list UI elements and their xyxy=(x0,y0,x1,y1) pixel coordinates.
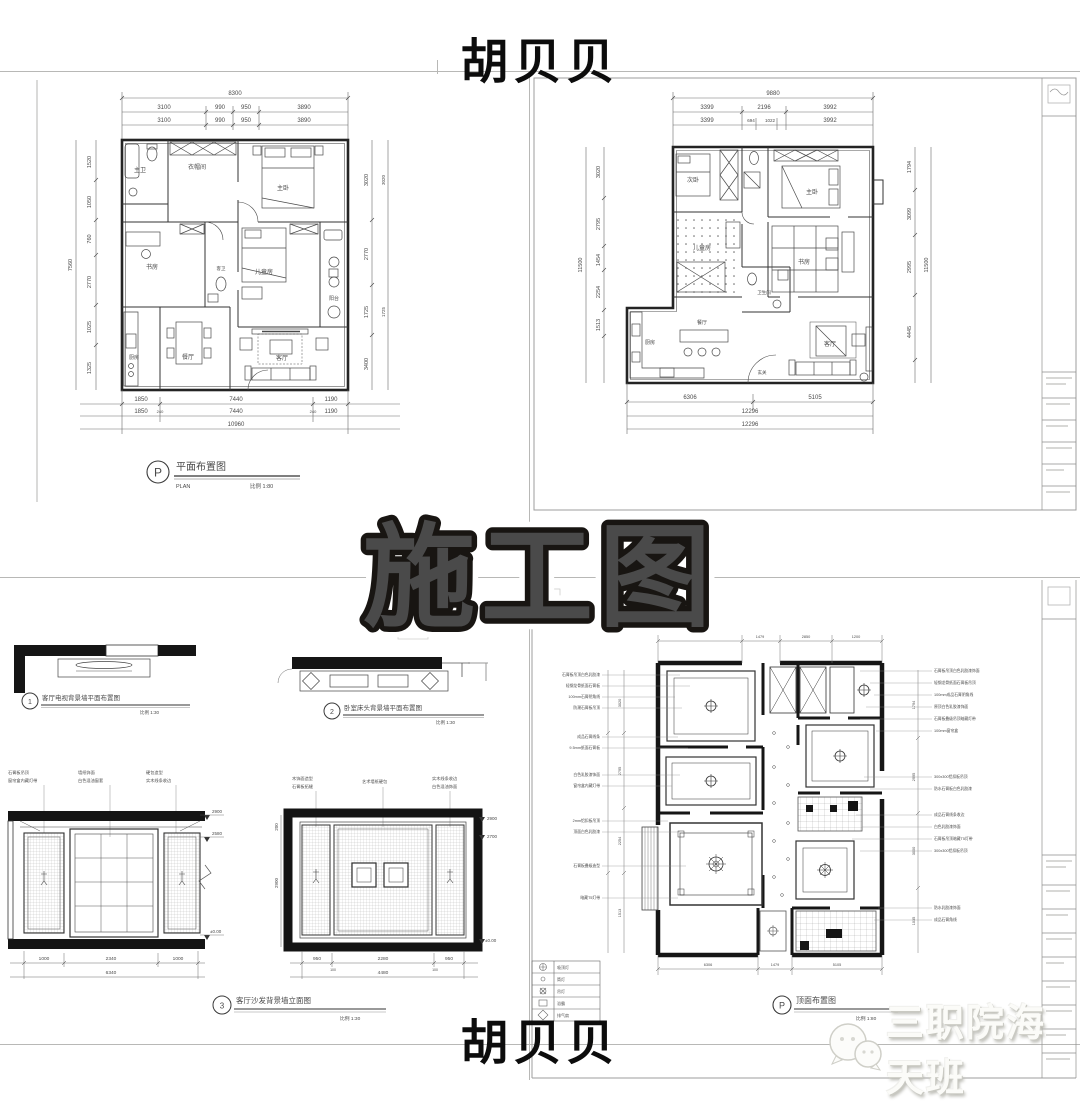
leader-notes: 木饰面造型 石膏板拓缝 艺术墙纸硬包 实木线条收边 白色混油饰面 xyxy=(292,775,458,827)
svg-text:成品石膏角线: 成品石膏角线 xyxy=(934,917,957,922)
svg-text:3020: 3020 xyxy=(618,699,622,707)
door-arc xyxy=(205,222,223,240)
svg-text:2340: 2340 xyxy=(106,956,117,962)
dim-label: 1725 xyxy=(381,306,386,317)
svg-text:2580: 2580 xyxy=(212,831,223,836)
sink-icon xyxy=(129,188,137,196)
dim-label: 3020 xyxy=(364,174,370,186)
wardrobe xyxy=(720,150,738,200)
dim-label: 3399 xyxy=(700,105,714,111)
detail-scale: 比例 1:30 xyxy=(436,719,456,726)
dim-label: 1454 xyxy=(596,254,602,266)
plan-walls xyxy=(627,147,883,383)
dimension-chain-right: 1794 2995 3000 1035 xyxy=(912,670,920,953)
svg-text:950: 950 xyxy=(313,956,321,962)
art-frame xyxy=(352,863,376,887)
svg-text:2795: 2795 xyxy=(618,767,622,775)
drawing-title-en: PLAN xyxy=(176,484,190,490)
dimension-chain-bottom: 6306 5105 12296 12296 xyxy=(625,383,875,434)
toilet-icon xyxy=(750,152,759,165)
svg-text:100: 100 xyxy=(330,968,336,972)
svg-text:白色混油窗套: 白色混油窗套 xyxy=(78,777,104,784)
dim-label: 3992 xyxy=(823,105,837,111)
toilet-icon xyxy=(748,273,757,285)
dim-label: 3890 xyxy=(297,118,311,124)
break-mark xyxy=(199,865,211,889)
dim-label: 1190 xyxy=(325,409,339,415)
ceiling-lamp xyxy=(704,774,718,788)
svg-text:200: 200 xyxy=(274,823,279,831)
dim-label: 3099 xyxy=(907,208,913,220)
dim-label: 1025 xyxy=(87,321,93,333)
dim-label: 1325 xyxy=(87,362,93,374)
sheet-border xyxy=(534,78,1076,510)
dim-label: 3100 xyxy=(157,105,171,111)
svg-text:艺术墙纸硬包: 艺术墙纸硬包 xyxy=(362,778,388,785)
chandelier xyxy=(817,862,833,878)
kids-room-ceiling xyxy=(675,214,740,295)
svg-text:石膏板叠级吊顶暗藏灯带: 石膏板叠级吊顶暗藏灯带 xyxy=(934,716,976,721)
room-label-living: 客厅 xyxy=(824,340,836,348)
svg-text:5105: 5105 xyxy=(833,963,841,967)
sofa xyxy=(252,368,310,380)
dim-label: 2995 xyxy=(907,261,913,273)
svg-text:顶面白色乳胶漆: 顶面白色乳胶漆 xyxy=(573,829,600,834)
title-no: 2 xyxy=(330,709,334,716)
bed-master xyxy=(782,166,840,208)
svg-text:±0.00: ±0.00 xyxy=(210,929,222,934)
lamp-symbol xyxy=(422,673,439,690)
dimension-chain-left: 3020 2795 2254 1513 xyxy=(606,670,626,953)
dim-label: 2795 xyxy=(596,218,602,230)
dim-label: 3890 xyxy=(297,105,311,111)
dimension-chain-left: 3020 2795 1454 2254 1513 11500 xyxy=(578,147,606,383)
dim-label: 12296 xyxy=(742,409,759,415)
svg-text:1000: 1000 xyxy=(39,956,50,962)
svg-text:950: 950 xyxy=(445,956,453,962)
detail-title: 客厅电视背景墙平面布置图 xyxy=(42,693,120,702)
center-banner: 施工图 施工图 施工图 xyxy=(240,498,840,658)
svg-text:6340: 6340 xyxy=(106,970,117,976)
downlights xyxy=(773,732,790,897)
dim-label: 3100 xyxy=(157,118,171,124)
detail-title-a: 1 客厅电视背景墙平面布置图 比例 1:30 xyxy=(22,693,190,716)
bed-second xyxy=(676,154,710,196)
ceiling-coffers xyxy=(666,667,874,905)
svg-text:300x300铝扣板吊顶: 300x300铝扣板吊顶 xyxy=(934,848,968,853)
channel-watermark: 三职院海天班 xyxy=(822,1016,1080,1078)
elevation-sofa-wall: 木饰面造型 石膏板拓缝 艺术墙纸硬包 实木线条收边 白色混油饰面 200 290… xyxy=(274,775,498,979)
dim-label: 4445 xyxy=(907,326,913,338)
dimension-chain-right: 1794 3099 2995 4445 11500 xyxy=(907,147,931,383)
door-arc xyxy=(278,669,292,683)
dim-label: 2196 xyxy=(757,105,771,111)
svg-text:1794: 1794 xyxy=(912,701,916,709)
room-label-kitchen: 厨房 xyxy=(645,339,655,346)
room-label-bath-g: 客卫 xyxy=(217,265,226,272)
svg-text:墙纸饰面: 墙纸饰面 xyxy=(78,769,95,776)
ceiling-lamp xyxy=(857,683,871,697)
dim-label: 990 xyxy=(215,105,226,111)
bar-stool xyxy=(684,348,692,356)
dim-label: 6306 xyxy=(683,395,697,401)
wechat-icon xyxy=(822,1018,886,1076)
sheet-title-strip xyxy=(1042,78,1076,510)
detail-title-b: 2 卧室床头背景墙平面布置图 比例 1:30 xyxy=(324,703,484,726)
dim-label: 5105 xyxy=(808,395,822,401)
svg-text:白色混油饰面: 白色混油饰面 xyxy=(432,783,457,790)
svg-text:4480: 4480 xyxy=(378,970,389,976)
room-label-master: 主卧 xyxy=(806,188,818,196)
svg-text:2280: 2280 xyxy=(378,956,389,962)
svg-text:窗帘盒内藏灯带: 窗帘盒内藏灯带 xyxy=(8,777,37,784)
detail-scale: 比例 1:30 xyxy=(140,709,160,716)
dim-label: 760 xyxy=(87,234,93,243)
svg-text:实木线条收边: 实木线条收边 xyxy=(146,777,172,784)
svg-text:300x300铝扣板吊顶: 300x300铝扣板吊顶 xyxy=(934,774,968,779)
svg-text:成品石膏线条: 成品石膏线条 xyxy=(577,734,600,739)
ceiling-lamp xyxy=(704,699,718,713)
detail-tv-wall-plan xyxy=(14,645,196,693)
dim-label: 990 xyxy=(215,118,226,124)
dimension-chain-right: 3020 2770 1725 3400 3020 1725 xyxy=(364,140,388,390)
room-label-kids: 儿童房 xyxy=(693,244,711,252)
dim-label: 3020 xyxy=(381,174,386,185)
svg-text:石膏板叠级造型: 石膏板叠级造型 xyxy=(573,863,600,868)
room-label-second: 次卧 xyxy=(687,176,699,184)
svg-text:石膏板吊顶白色乳胶漆: 石膏板吊顶白色乳胶漆 xyxy=(562,672,600,677)
svg-text:9.5mm纸面石膏板: 9.5mm纸面石膏板 xyxy=(569,745,600,750)
kitchen-counter xyxy=(124,312,138,386)
tile-ceilings xyxy=(760,797,876,951)
svg-text:吸顶灯: 吸顶灯 xyxy=(557,964,569,970)
detail-title: 卧室床头背景墙平面布置图 xyxy=(344,703,422,712)
svg-text:窗帘盒内藏灯带: 窗帘盒内藏灯带 xyxy=(573,783,600,788)
room-label-bath-m: 主卫 xyxy=(134,166,146,174)
room-label-balcony: 阳台 xyxy=(329,295,339,302)
room-label-bath: 卫生间 xyxy=(757,289,771,296)
dim-label: 1050 xyxy=(87,196,93,208)
dim-label: 11500 xyxy=(578,258,584,273)
dim-label: 12296 xyxy=(742,422,759,428)
door-arc xyxy=(742,212,754,224)
dim-label: 1794 xyxy=(907,161,913,173)
title-letter: P xyxy=(154,466,162,480)
dimension-chain-bottom: 950 2280 950 100 100 4480 xyxy=(290,951,478,979)
dimension-chain-top: 9880 3399 2196 3992 3399 694 1022 3992 xyxy=(671,91,875,147)
svg-text:筒灯: 筒灯 xyxy=(557,976,565,982)
svg-text:轻钢龙骨纸面石膏板吊顶: 轻钢龙骨纸面石膏板吊顶 xyxy=(934,680,976,685)
dim-label: 694 xyxy=(747,118,755,123)
svg-text:2254: 2254 xyxy=(618,837,622,845)
dim-label: 1513 xyxy=(596,319,602,331)
sofa xyxy=(796,362,850,375)
desk-kids xyxy=(242,287,262,299)
dim-label: 3399 xyxy=(700,118,714,124)
dimension-chain-bottom: 1850 7440 1190 1850 240 7440 240 1190 10… xyxy=(80,390,400,434)
dim-label: 1022 xyxy=(765,118,776,123)
chandelier xyxy=(706,854,726,874)
height-marks-left: 200 2900 xyxy=(274,815,281,947)
drawing-title: 平面布置图 xyxy=(176,461,226,473)
svg-text:100: 100 xyxy=(432,968,438,972)
svg-text:成品石膏线条收边: 成品石膏线条收边 xyxy=(934,812,965,817)
svg-text:石膏板吊顶: 石膏板吊顶 xyxy=(8,769,30,776)
ceiling-lamp xyxy=(833,749,847,763)
drawing-scale: 比例 1:80 xyxy=(250,482,273,490)
svg-text:2900: 2900 xyxy=(212,809,223,814)
svg-text:100mm石膏阴角线: 100mm石膏阴角线 xyxy=(568,694,600,699)
svg-text:1000: 1000 xyxy=(173,956,184,962)
svg-text:暗藏T5灯带: 暗藏T5灯带 xyxy=(580,895,600,900)
dim-label: 950 xyxy=(241,105,252,111)
svg-text:±0.00: ±0.00 xyxy=(485,938,497,943)
dim-label: 1850 xyxy=(134,397,148,403)
svg-text:吊灯: 吊灯 xyxy=(557,988,565,994)
dim-label: 3020 xyxy=(596,166,602,178)
lamp-symbol xyxy=(303,673,320,690)
door-arc xyxy=(238,202,258,222)
svg-text:石膏板吊顶白色乳胶漆饰面: 石膏板吊顶白色乳胶漆饰面 xyxy=(934,668,980,673)
tea-table xyxy=(270,340,292,354)
sheet-logo xyxy=(1048,587,1070,605)
side-panel xyxy=(436,825,464,935)
svg-text:实木线条收边: 实木线条收边 xyxy=(432,775,458,782)
channel-name: 三职院海天班 xyxy=(886,992,1080,1102)
svg-text:100mm窗帘盒: 100mm窗帘盒 xyxy=(934,728,958,733)
dim-label: 950 xyxy=(241,118,252,124)
dimension-chain-bottom: 1000 2340 1000 6340 xyxy=(10,951,205,979)
dim-label: 240 xyxy=(157,409,164,414)
top-watermark-name: 胡贝贝 xyxy=(0,22,1080,92)
dim-label: 1725 xyxy=(364,306,370,318)
svg-text:石膏板吊顶暗藏T5灯带: 石膏板吊顶暗藏T5灯带 xyxy=(934,836,973,841)
banner-text: 施工图 xyxy=(363,515,717,640)
dim-label: 7440 xyxy=(229,409,243,415)
room-label-cloak: 衣帽间 xyxy=(188,163,206,171)
svg-text:1200: 1200 xyxy=(852,635,860,639)
curtain-panel xyxy=(164,833,200,933)
island-bar xyxy=(680,330,728,342)
dim-label: 1520 xyxy=(87,156,93,168)
detail-bedside-wall-plan xyxy=(278,657,470,691)
curtain-panel xyxy=(24,833,64,933)
dim-label: 2770 xyxy=(364,248,370,260)
dim-label: 1190 xyxy=(325,397,339,403)
window-frame xyxy=(70,829,158,937)
svg-text:2700: 2700 xyxy=(487,834,498,839)
svg-text:木饰面造型: 木饰面造型 xyxy=(292,775,313,782)
svg-text:硬包造型: 硬包造型 xyxy=(146,769,163,776)
dim-label: 3400 xyxy=(364,358,370,370)
tv-cabinet xyxy=(866,327,872,371)
svg-text:白色乳胶漆饰面: 白色乳胶漆饰面 xyxy=(934,824,961,829)
svg-text:防潮石膏板吊顶: 防潮石膏板吊顶 xyxy=(573,705,600,710)
balcony-chair xyxy=(329,257,339,267)
room-label-kids: 儿童房 xyxy=(255,268,273,276)
rug xyxy=(810,322,856,358)
svg-text:2900: 2900 xyxy=(274,877,279,888)
dim-label: 1850 xyxy=(134,409,148,415)
dimension-chain-bottom: 6306 1479 5105 xyxy=(656,955,884,975)
dim-label: 240 xyxy=(310,409,317,414)
room-label-dining: 餐厅 xyxy=(182,353,194,361)
svg-text:1035: 1035 xyxy=(912,917,916,925)
svg-text:原顶白色乳胶漆饰面: 原顶白色乳胶漆饰面 xyxy=(934,704,968,709)
svg-text:轻钢龙骨纸面石膏板: 轻钢龙骨纸面石膏板 xyxy=(566,683,600,688)
svg-text:防水乳胶漆饰面: 防水乳胶漆饰面 xyxy=(934,905,961,910)
svg-text:1479: 1479 xyxy=(771,963,779,967)
room-label-dining: 餐厅 xyxy=(697,319,707,326)
svg-text:2900: 2900 xyxy=(487,816,498,821)
side-panel xyxy=(302,825,330,935)
svg-text:6306: 6306 xyxy=(704,963,712,967)
dimension-chain-top: 8300 3100 990 950 3890 3100 990 950 3890 xyxy=(120,91,350,140)
dim-label: 2770 xyxy=(87,276,93,288)
room-label-entry: 玄关 xyxy=(758,369,767,376)
art-frame xyxy=(384,863,408,887)
height-marks: 2900 2580 ±0.00 xyxy=(199,809,224,940)
elevation-window-wall: 石膏板吊顶 窗帘盒内藏灯带 墙纸饰面 白色混油窗套 硬包造型 实木线条收边 29… xyxy=(8,769,224,979)
center-panel xyxy=(334,825,432,935)
svg-text:100mm成品石膏阴角线: 100mm成品石膏阴角线 xyxy=(934,692,973,697)
dim-label: 10960 xyxy=(228,422,245,428)
door-arc xyxy=(748,355,776,383)
dim-label: 11500 xyxy=(924,258,930,273)
leader-notes-left: 石膏板吊顶白色乳胶漆 轻钢龙骨纸面石膏板 100mm石膏阴角线 防潮石膏板吊顶 … xyxy=(562,672,690,900)
dim-label: 7560 xyxy=(68,259,74,271)
title-no: 1 xyxy=(28,699,32,706)
room-label-master: 主卧 xyxy=(277,184,289,192)
room-label-study: 书房 xyxy=(798,258,810,266)
svg-text:白色乳胶漆饰面: 白色乳胶漆饰面 xyxy=(573,772,600,777)
dim-label: 2254 xyxy=(596,286,602,298)
svg-text:防水石膏板白色乳胶漆: 防水石膏板白色乳胶漆 xyxy=(934,786,972,791)
svg-text:2mm铝扣板吊顶: 2mm铝扣板吊顶 xyxy=(573,818,601,823)
ceiling-lamp xyxy=(767,925,779,937)
svg-text:1513: 1513 xyxy=(618,909,622,917)
toilet-icon xyxy=(216,277,226,291)
dim-label: 7440 xyxy=(229,397,243,403)
drawing-title-block: P 平面布置图 PLAN 比例 1:80 xyxy=(147,461,300,490)
room-label-study: 书房 xyxy=(146,263,158,271)
desk xyxy=(126,232,160,246)
svg-text:石膏板拓缝: 石膏板拓缝 xyxy=(292,783,314,790)
tatami xyxy=(772,226,838,292)
dim-label: 3992 xyxy=(823,118,837,124)
dimension-chain-left: 1520 1050 760 2770 1025 1325 7560 xyxy=(68,140,98,390)
room-label-kitchen: 厨房 xyxy=(129,354,139,361)
tv-top-view xyxy=(76,662,132,669)
corner-mark xyxy=(468,663,488,681)
bed-master xyxy=(262,146,314,208)
balcony-louver xyxy=(642,827,658,910)
room-label-living: 客厅 xyxy=(276,354,288,362)
